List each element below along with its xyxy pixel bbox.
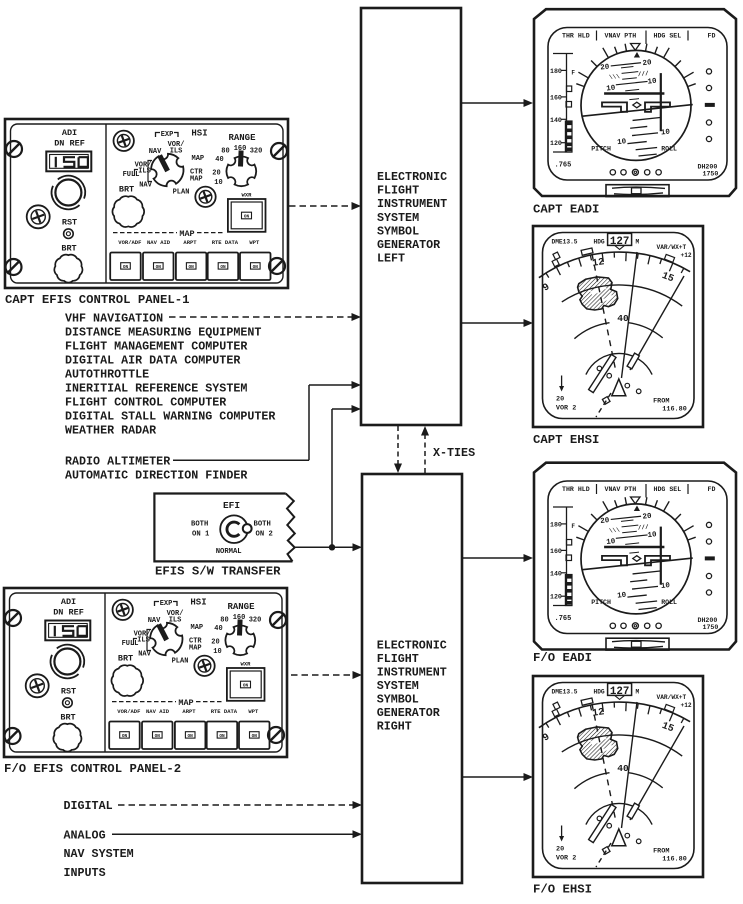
svg-text:CAPT EFIS CONTROL PANEL-1: CAPT EFIS CONTROL PANEL-1 bbox=[5, 293, 189, 307]
svg-text:NAV SYSTEM: NAV SYSTEM bbox=[64, 847, 134, 861]
svg-text:NORMAL: NORMAL bbox=[216, 548, 242, 556]
svg-text:CAPT EHSI: CAPT EHSI bbox=[533, 433, 599, 447]
svg-text:EFI: EFI bbox=[223, 500, 240, 511]
svg-text:ELECTRONIC: ELECTRONIC bbox=[377, 638, 447, 652]
svg-text:AUTOTHROTTLE: AUTOTHROTTLE bbox=[65, 367, 149, 381]
svg-text:DISTANCE MEASURING EQUIPMENT: DISTANCE MEASURING EQUIPMENT bbox=[65, 325, 261, 339]
svg-text:WEATHER RADAR: WEATHER RADAR bbox=[65, 423, 156, 437]
svg-text:INSTRUMENT: INSTRUMENT bbox=[377, 665, 447, 679]
svg-text:FLIGHT CONTROL COMPUTER: FLIGHT CONTROL COMPUTER bbox=[65, 395, 226, 409]
svg-text:RADIO ALTIMETER: RADIO ALTIMETER bbox=[65, 454, 170, 468]
svg-text:VHF NAVIGATION: VHF NAVIGATION bbox=[65, 311, 163, 325]
svg-text:ELECTRONIC: ELECTRONIC bbox=[377, 170, 447, 184]
svg-text:LEFT: LEFT bbox=[377, 251, 405, 265]
svg-text:FLIGHT: FLIGHT bbox=[377, 184, 419, 198]
svg-text:RIGHT: RIGHT bbox=[377, 720, 412, 734]
svg-text:ON 1: ON 1 bbox=[192, 531, 210, 539]
svg-text:CAPT EADI: CAPT EADI bbox=[533, 203, 599, 217]
svg-text:GENERATOR: GENERATOR bbox=[377, 706, 440, 720]
svg-text:GENERATOR: GENERATOR bbox=[377, 238, 440, 252]
svg-text:INSTRUMENT: INSTRUMENT bbox=[377, 197, 447, 211]
svg-text:F/O EADI: F/O EADI bbox=[533, 651, 592, 665]
svg-text:F/O EFIS CONTROL PANEL-2: F/O EFIS CONTROL PANEL-2 bbox=[4, 762, 181, 776]
svg-text:SYSTEM: SYSTEM bbox=[377, 679, 419, 693]
svg-text:X-TIES: X-TIES bbox=[433, 446, 475, 460]
svg-text:INERITIAL REFERENCE SYSTEM: INERITIAL REFERENCE SYSTEM bbox=[65, 381, 247, 395]
svg-text:BOTH: BOTH bbox=[191, 520, 208, 528]
svg-text:ON 2: ON 2 bbox=[256, 531, 273, 539]
svg-text:DIGITAL STALL WARNING COMPUTER: DIGITAL STALL WARNING COMPUTER bbox=[65, 409, 275, 423]
svg-text:SYSTEM: SYSTEM bbox=[377, 211, 419, 225]
svg-text:FLIGHT MANAGEMENT COMPUTER: FLIGHT MANAGEMENT COMPUTER bbox=[65, 339, 247, 353]
svg-text:DIGITAL: DIGITAL bbox=[64, 799, 113, 813]
svg-text:SYMBOL: SYMBOL bbox=[377, 693, 419, 707]
svg-text:SYMBOL: SYMBOL bbox=[377, 224, 419, 238]
svg-text:INPUTS: INPUTS bbox=[64, 866, 106, 880]
svg-text:EFIS S/W TRANSFER: EFIS S/W TRANSFER bbox=[155, 565, 281, 579]
svg-text:FLIGHT: FLIGHT bbox=[377, 652, 419, 666]
svg-text:BOTH: BOTH bbox=[254, 520, 271, 528]
svg-text:DIGITAL AIR DATA COMPUTER: DIGITAL AIR DATA COMPUTER bbox=[65, 353, 240, 367]
svg-text:ANALOG: ANALOG bbox=[64, 829, 106, 843]
svg-text:AUTOMATIC DIRECTION FINDER: AUTOMATIC DIRECTION FINDER bbox=[65, 468, 247, 482]
svg-text:F/O EHSI: F/O EHSI bbox=[533, 883, 592, 897]
